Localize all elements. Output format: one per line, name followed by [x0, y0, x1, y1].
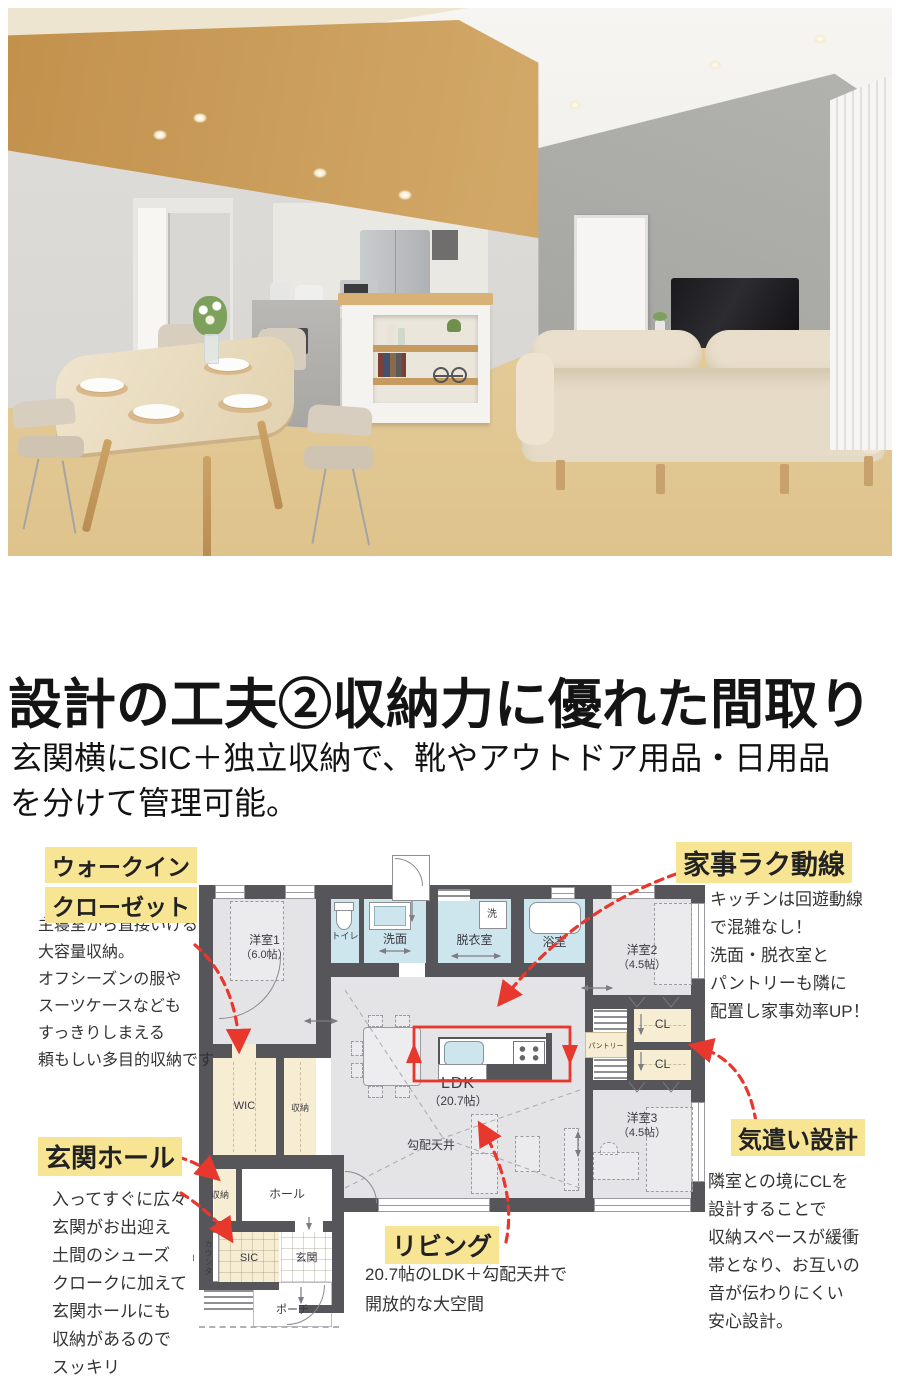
- annotation-body-living: 20.7帖のLDK＋勾配天井で 開放的な大空間: [365, 1260, 567, 1320]
- chair-plan: [395, 1015, 410, 1027]
- note-line: オフシーズンの服や: [38, 966, 214, 993]
- note-line: 安心設計。: [708, 1308, 860, 1336]
- wall: [634, 1042, 691, 1050]
- interior-render-photo: [8, 8, 892, 556]
- chair-plan: [368, 1015, 383, 1027]
- room-label-yokushitsu: 浴室: [524, 935, 585, 950]
- downlight-icon: [708, 60, 722, 70]
- note-line: 帯となり、お互いの: [708, 1252, 860, 1280]
- annotation-body-genkan: 入ってすぐに広々 玄関がお出迎え 土間のシューズ クロークに加えて 玄関ホールに…: [52, 1186, 187, 1382]
- room-label: 洋室2: [593, 943, 691, 958]
- note-line: 開放的な大空間: [365, 1290, 567, 1320]
- door-opening: [399, 963, 425, 977]
- window: [691, 1102, 705, 1182]
- note-line: キッチンは回遊動線: [710, 886, 870, 914]
- plate: [80, 378, 124, 392]
- downlight-icon: [568, 100, 582, 110]
- subtitle-line: を分けて管理可能。: [10, 781, 900, 826]
- room-label-pantry: パントリー: [585, 1039, 627, 1054]
- highlight-label: 玄関ホール: [38, 1137, 182, 1176]
- highlight-label: 気遣い設計: [731, 1119, 865, 1156]
- note-line: すっきりしまえる: [38, 1020, 214, 1047]
- window: [594, 1198, 691, 1212]
- wall: [316, 963, 593, 977]
- room-label-wic: WIC: [213, 1099, 276, 1114]
- window: [215, 885, 245, 899]
- note-line: スッキリ: [52, 1354, 187, 1382]
- kitchen-sink-plan: [444, 1041, 484, 1066]
- annotation-label-kizukai: 気遣い設計: [731, 1119, 865, 1156]
- annotation-body-walkin: 主寝室から直接いける 大容量収納。 オフシーズンの服や スーツケースなども すっ…: [38, 912, 214, 1074]
- note-line: 大容量収納。: [38, 939, 214, 966]
- note-line: パントリーも隣に: [710, 970, 870, 998]
- pantry-shelf: [594, 1010, 627, 1030]
- sofa-arm: [516, 353, 554, 445]
- desk-plan: [593, 1152, 639, 1180]
- annotation-label-kaji: 家事ラク動線: [676, 842, 852, 883]
- wall: [593, 995, 691, 1009]
- window: [691, 903, 705, 979]
- chair-seat: [304, 446, 374, 469]
- chair-back: [12, 397, 76, 428]
- door-opening: [295, 1221, 323, 1232]
- desk-chair-plan: [600, 1142, 618, 1155]
- chair-back: [307, 404, 373, 436]
- downlight-icon: [193, 113, 207, 123]
- sofa-leg: [864, 456, 873, 486]
- subtitle-line: 玄関横にSIC＋独立収納で、靴やアウトドア用品・日用品: [10, 736, 900, 781]
- note-line: 洗面・脱衣室と: [710, 942, 870, 970]
- wall: [199, 1044, 331, 1058]
- chair-plan: [351, 1041, 363, 1056]
- note-line: で混雑なし！: [710, 914, 870, 942]
- table-leg: [203, 456, 211, 556]
- highlight-label: 家事ラク動線: [676, 842, 852, 883]
- bathtub: [529, 902, 581, 934]
- room-label-genkan: 玄関: [281, 1251, 332, 1266]
- note-line: 土間のシューズ: [52, 1242, 187, 1270]
- books: [378, 353, 406, 377]
- stove-plan: [513, 1041, 545, 1065]
- plate: [133, 404, 180, 419]
- room-size-label-ldk: （20.7帖）: [331, 1094, 585, 1109]
- room-size-label: （4.5帖）: [593, 958, 691, 973]
- kitchen-island: [342, 305, 490, 423]
- annotation-body-kaji: キッチンは回遊動線 で混雑なし！ 洗面・脱衣室と パントリーも隣に 配置し家事効…: [710, 886, 870, 1026]
- room-label-cl: CL: [634, 1057, 691, 1072]
- page-subtitle: 玄関横にSIC＋独立収納で、靴やアウトドア用品・日用品 を分けて管理可能。: [10, 736, 900, 826]
- sofa-leg: [780, 464, 789, 494]
- label-sloped-ceiling: 勾配天井: [381, 1138, 481, 1153]
- downlight-icon: [313, 168, 327, 178]
- chair-seat: [18, 436, 84, 458]
- room-label-shuno: 収納: [284, 1101, 316, 1116]
- wall: [199, 1155, 344, 1169]
- sofa-leg: [556, 460, 565, 490]
- room-label-sic: SIC: [219, 1251, 279, 1266]
- annotation-label-genkan: 玄関ホール: [38, 1137, 182, 1176]
- room-size-label: （4.5帖）: [593, 1126, 691, 1141]
- room-label-counter: カウンター: [202, 1236, 216, 1280]
- room-label-porch: ポーチ: [253, 1303, 332, 1318]
- plate: [223, 394, 268, 408]
- island-counter-top: [338, 293, 493, 305]
- room-label-senmen: 洗面: [364, 932, 426, 947]
- flower-vase: [204, 334, 219, 364]
- room-label-yoshitsu3: 洋室3 （4.5帖）: [593, 1111, 691, 1141]
- wall: [627, 1009, 634, 1087]
- window: [378, 1198, 490, 1212]
- sink-basin: [374, 906, 406, 926]
- sofa-plan: [471, 1153, 498, 1194]
- wall: [332, 1169, 344, 1312]
- wall: [199, 1282, 279, 1290]
- niche-shelf: [373, 345, 478, 352]
- plant: [447, 319, 461, 332]
- tv-board-plan: [564, 1128, 579, 1191]
- counter-base: [546, 1033, 552, 1068]
- toilet-bowl: [336, 910, 352, 930]
- pantry-shelf: [594, 1059, 627, 1079]
- note-line: 配置し家事効率UP！: [710, 998, 870, 1026]
- room-label-yoshitsu1: 洋室1 （6.0帖）: [213, 933, 316, 963]
- note-line: 音が伝わりにくい: [708, 1280, 860, 1308]
- room-label-toilet: トイレ: [328, 929, 362, 944]
- wall: [276, 1058, 284, 1155]
- room-label: 洋室3: [593, 1111, 691, 1126]
- downlight-icon: [398, 190, 412, 200]
- toy-bicycle: [433, 359, 463, 377]
- note-line: 入ってすぐに広々: [52, 1186, 187, 1214]
- highlight-label: ウォークイン: [45, 847, 197, 883]
- island-niche: [373, 315, 478, 403]
- wall: [593, 1080, 691, 1090]
- note-line: 頼もしい多目的収納です: [38, 1047, 214, 1074]
- note-line: 隣室との境にCLを: [708, 1168, 860, 1196]
- note-line: 収納スペースが緩衝: [708, 1224, 860, 1252]
- page-title: 設計の工夫②収納力に優れた間取り: [8, 660, 898, 739]
- highlight-label: リビング: [385, 1226, 499, 1264]
- room-label-hall: ホール: [242, 1187, 332, 1202]
- note-line: スーツケースなども: [38, 993, 214, 1020]
- room-label-datsuishitsu: 脱衣室: [438, 933, 511, 948]
- note-line: 玄関ホールにも: [52, 1298, 187, 1326]
- white-sliding-door: [574, 215, 648, 339]
- room-label-washer: 洗: [479, 907, 505, 922]
- sofa-leg: [656, 464, 665, 494]
- bottle: [398, 328, 405, 345]
- room-label-cl: CL: [634, 1017, 691, 1032]
- window: [551, 887, 575, 899]
- site-boundary-dashed: [199, 1326, 339, 1328]
- room-label-ldk: LDK: [331, 1076, 585, 1091]
- downlight-icon: [813, 34, 827, 44]
- annotation-label-living: リビング: [385, 1226, 499, 1264]
- wall: [511, 899, 524, 963]
- window-lattice: [438, 889, 470, 901]
- window: [611, 885, 655, 899]
- note-line: 20.7帖のLDK＋勾配天井で: [365, 1260, 567, 1290]
- room-label-yoshitsu2: 洋室2 （4.5帖）: [593, 943, 691, 973]
- annotation-body-kizukai: 隣室との境にCLを 設計することで 収納スペースが緩衝 帯となり、お互いの 音が…: [708, 1168, 860, 1336]
- flower-bouquet: [193, 296, 227, 336]
- room-size-label: （6.0帖）: [213, 948, 316, 963]
- highlight-label: クローゼット: [45, 887, 197, 923]
- downlight-icon: [153, 130, 167, 140]
- living-table-plan: [515, 1136, 540, 1172]
- room-label-shuno-hall: 収納: [204, 1188, 236, 1203]
- note-line: 設計することで: [708, 1196, 860, 1224]
- door-opening: [232, 1044, 256, 1058]
- annotation-label-walkin: ウォークイン クローゼット: [45, 847, 197, 923]
- note-line: クロークに加えて: [52, 1270, 187, 1298]
- open-shelf: [432, 230, 458, 260]
- bottle: [387, 325, 395, 345]
- vertical-blinds: [830, 74, 892, 450]
- wall: [426, 899, 438, 963]
- note-line: 玄関がお出迎え: [52, 1214, 187, 1242]
- room-label: 洋室1: [213, 933, 316, 948]
- window: [285, 885, 315, 899]
